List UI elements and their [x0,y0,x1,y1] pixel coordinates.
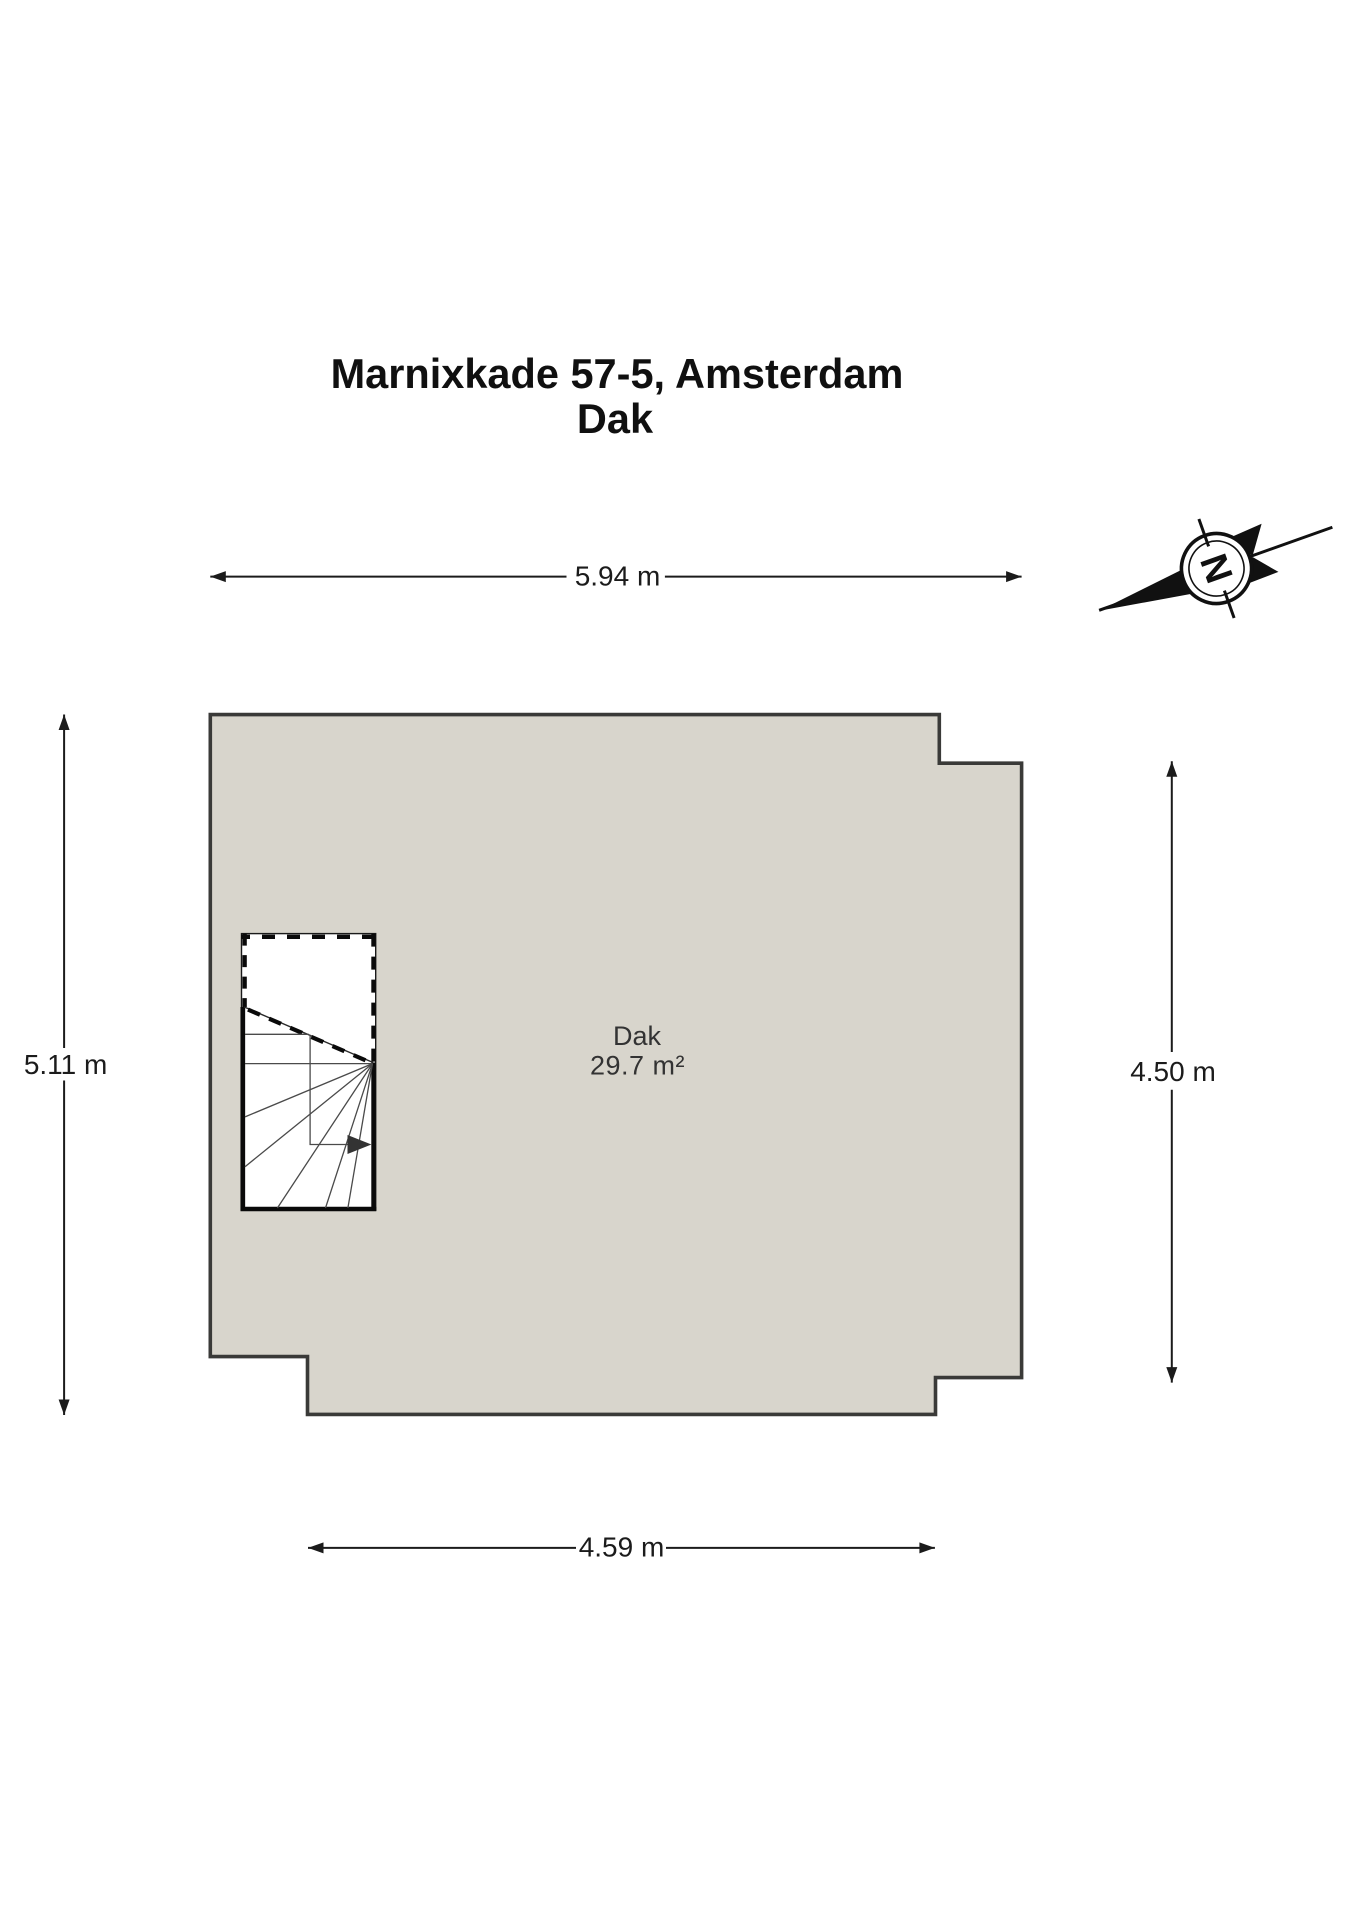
svg-text:4.50 m: 4.50 m [1130,1056,1216,1087]
svg-text:Dak: Dak [577,395,654,442]
svg-text:4.59 m: 4.59 m [579,1532,665,1563]
svg-text:29.7 m²: 29.7 m² [590,1050,685,1080]
svg-text:Dak: Dak [613,1021,662,1051]
svg-text:Marnixkade 57-5, Amsterdam: Marnixkade 57-5, Amsterdam [331,350,904,397]
svg-text:5.94 m: 5.94 m [575,560,661,591]
svg-text:5.11 m: 5.11 m [24,1049,108,1080]
